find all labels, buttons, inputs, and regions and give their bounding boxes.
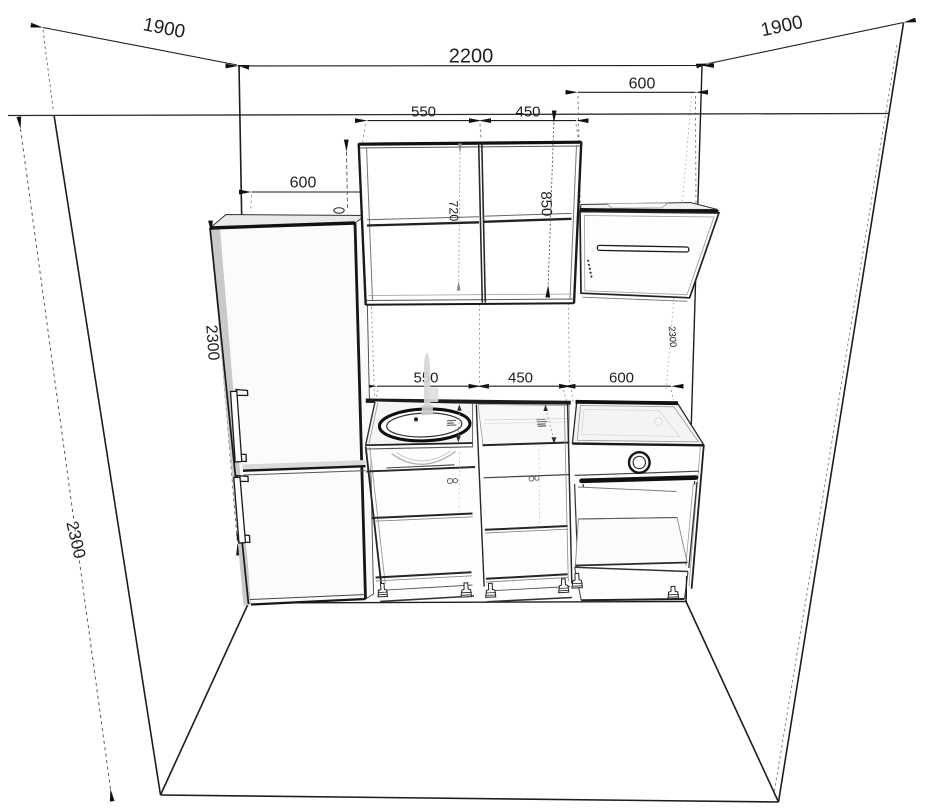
svg-text:450: 450	[515, 104, 540, 121]
svg-text:2200: 2200	[449, 46, 494, 68]
svg-text:600: 600	[609, 370, 634, 387]
svg-text:550: 550	[411, 104, 436, 121]
svg-text:600: 600	[629, 76, 656, 93]
svg-text:720: 720	[446, 200, 461, 221]
svg-text:1900: 1900	[759, 12, 805, 41]
svg-text:2300: 2300	[202, 324, 221, 361]
svg-text:450: 450	[508, 370, 533, 387]
svg-text:2300: 2300	[666, 326, 678, 348]
svg-text:1900: 1900	[141, 14, 187, 43]
svg-text:600: 600	[290, 175, 317, 192]
svg-text:2300: 2300	[62, 519, 89, 560]
svg-text:850: 850	[537, 191, 555, 217]
